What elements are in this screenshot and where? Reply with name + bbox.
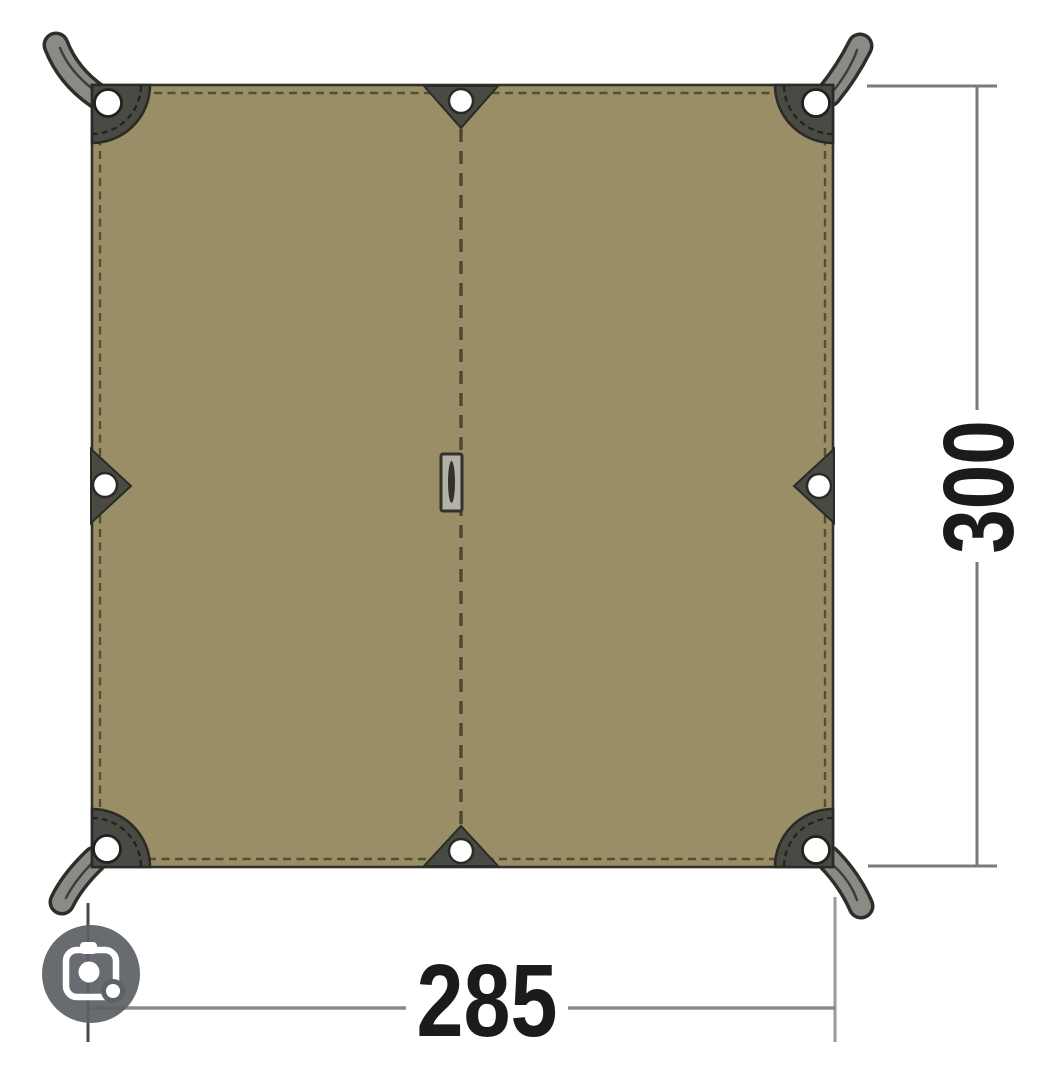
- grommet: [449, 89, 473, 113]
- screenshot-canvas: 300 285: [0, 0, 1052, 1080]
- grommet: [93, 473, 117, 497]
- grommet: [94, 836, 121, 863]
- tarp-dimension-diagram: 300 285: [0, 0, 1052, 1080]
- height-dimension-label: 300: [924, 420, 1036, 553]
- icon-corner-dot: [106, 984, 120, 998]
- grommet: [95, 90, 122, 117]
- center-hang-loop: [441, 454, 462, 511]
- grommet: [449, 839, 473, 863]
- icon-lens-circle: [79, 962, 100, 983]
- width-dimension-label: 285: [417, 943, 558, 1058]
- grommet: [803, 837, 830, 864]
- strap-bottom-left: [62, 859, 95, 902]
- grommet: [803, 90, 830, 117]
- grommet: [807, 474, 831, 498]
- width-dimension: 285: [88, 897, 835, 1058]
- loop-slit: [448, 461, 455, 503]
- height-dimension: 300: [867, 86, 1035, 866]
- lens-screenshot-button[interactable]: [42, 925, 140, 1023]
